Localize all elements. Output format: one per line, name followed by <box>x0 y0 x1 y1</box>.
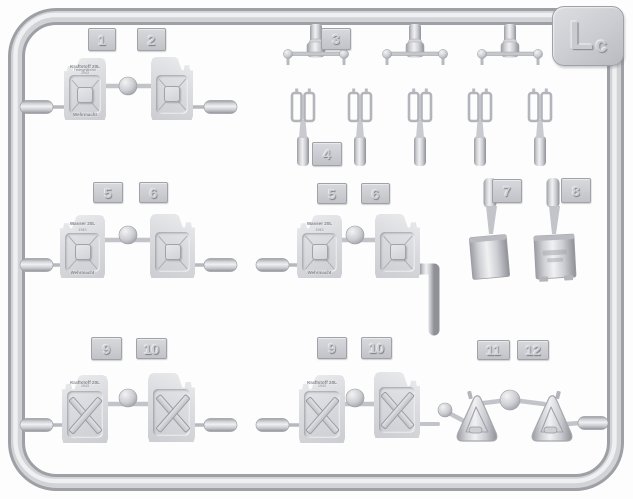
part-number-tag-2: 2 <box>137 28 166 51</box>
jerry-can-part-9-fuel-cross-center: Kraftstoff 20L 1943 <box>299 375 345 443</box>
can-recessed-panel <box>153 389 190 437</box>
part-number-tag-8: 8 <box>561 178 591 203</box>
part-number-tag-5-left: 5 <box>93 182 123 203</box>
can-center-plate <box>165 244 181 260</box>
can-recessed-panel <box>155 232 190 272</box>
part-number-tag-12: 12 <box>517 340 549 360</box>
can-center-plate <box>75 244 91 260</box>
part-11-triangle-bracket <box>457 391 497 441</box>
part-4-unit <box>529 89 551 167</box>
can-marking-year: 1943 <box>60 229 105 233</box>
part-number-tag-11: 11 <box>477 340 510 360</box>
can-center-plate <box>390 244 406 260</box>
can-marking-year: 1943 <box>299 385 345 389</box>
sprue-code-subletter: c <box>595 35 607 56</box>
part-number-tag-4: 4 <box>312 142 342 166</box>
part-number-tag-7: 7 <box>492 179 522 203</box>
jerry-can-part-1-fuel-front: Kraftstoff 20L Feuergefährlich 1943 Wehr… <box>64 58 106 120</box>
part-3-cap <box>477 24 542 65</box>
sprue-code-letter: L <box>569 16 593 56</box>
can-marking-bottom: Wehrmacht <box>297 271 342 276</box>
can-recessed-panel <box>304 391 340 438</box>
jerry-can-part-6-back-center <box>375 214 420 278</box>
can-marking-bottom: Wehrmacht <box>60 271 105 276</box>
can-marking-year: 1943 <box>62 385 108 389</box>
part-number-tag-10-left: 10 <box>136 338 167 359</box>
part-4-unit <box>409 89 431 167</box>
jerry-can-part-5-water-front-center: Wasser 20L 1943 Wehrmacht <box>297 215 342 278</box>
can-marking-line1: Wasser 20L <box>60 221 105 226</box>
part-4-unit <box>292 89 314 167</box>
part-number-tag-3: 3 <box>321 28 351 50</box>
jerry-can-part-2-back <box>151 57 193 120</box>
can-recessed-panel <box>156 75 189 115</box>
sprue-lc-diagram: 1 2 3 4 5 6 5 6 7 8 9 10 9 10 11 12 Kraf… <box>0 0 633 499</box>
can-marking-bottom: Wehrmacht <box>64 113 106 118</box>
part-number-tag-6-center: 6 <box>361 183 390 204</box>
can-recessed-panel <box>69 75 102 114</box>
jerry-can-part-10-cross-back-center <box>374 372 420 438</box>
part-number-tag-6-left: 6 <box>139 182 168 203</box>
sprue-code-tab: Lc <box>552 6 624 66</box>
can-marking-year: 1943 <box>64 72 106 76</box>
part-3-cap <box>382 24 447 65</box>
part-number-tag-9-center: 9 <box>317 337 347 359</box>
part-4-unit <box>349 89 371 167</box>
part-7-rack-plate <box>469 235 510 280</box>
can-center-plate <box>312 244 328 260</box>
part-4-unit <box>469 89 491 167</box>
can-recessed-panel <box>67 391 103 438</box>
can-recessed-panel <box>302 233 337 273</box>
part-number-tag-10-center: 10 <box>361 337 392 359</box>
can-marking-year: 1943 <box>297 229 342 233</box>
can-center-plate <box>77 87 93 103</box>
part-12-triangle-bracket <box>532 391 572 441</box>
can-recessed-panel <box>65 233 100 273</box>
jerry-can-part-5-water-front-left: Wasser 20L 1943 Wehrmacht <box>60 215 105 278</box>
can-marking-line1: Wasser 20L <box>297 221 342 226</box>
part-number-tag-9-left: 9 <box>91 337 122 360</box>
part-number-tag-5-center: 5 <box>317 183 347 204</box>
can-recessed-panel <box>380 232 415 272</box>
part-number-tag-1: 1 <box>88 28 116 51</box>
jerry-can-part-10-cross-back-left <box>148 373 195 442</box>
can-center-plate <box>164 86 180 102</box>
can-recessed-panel <box>379 387 415 433</box>
jerry-can-part-9-fuel-cross-left: Kraftstoff 20L 1943 <box>62 375 108 443</box>
jerry-can-part-6-back-left <box>150 214 195 278</box>
part-8-rack-plate <box>534 234 576 282</box>
